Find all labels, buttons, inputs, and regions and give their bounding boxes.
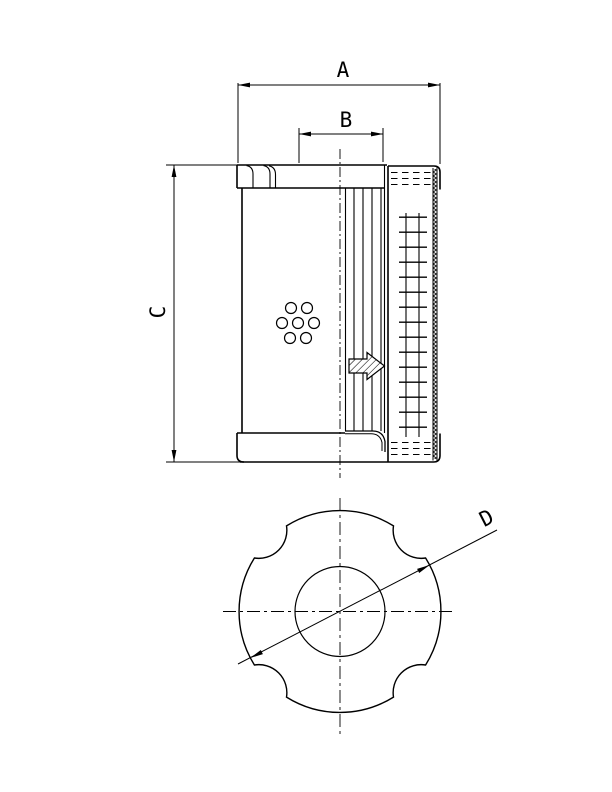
bottom-cap-left-edge [237,433,244,462]
dim-c-arrow-bottom [172,450,177,462]
dimension-c: C [146,165,240,462]
bottom-view: D [223,498,498,737]
bottom-end-cap [237,431,388,462]
drawing-page: A B C [0,0,612,792]
dim-c-arrow-top [172,165,177,177]
crosshair-centerlines [223,498,452,737]
wrap-top-edge-and-lip [388,166,440,190]
dim-a-arrow-right [428,83,440,88]
dim-c-label: C [146,306,170,319]
dimension-b: B [299,108,383,163]
element-body [237,149,388,478]
technical-drawing-canvas: A B C [0,0,612,792]
filter-pleats [346,188,382,431]
cap-rolled-seam-lines [247,166,276,188]
perforation-holes [277,303,320,344]
adhesive-band-bottom [391,443,432,455]
side-section-view: A B C [146,58,440,478]
outer-mesh-wrap [388,166,440,462]
dim-d-arrow-lower [250,650,263,658]
dim-a-label: A [337,58,350,82]
dim-d-arrow-upper [417,565,430,573]
dim-d-line [238,530,497,664]
dimension-d: D [238,505,498,664]
dim-a-arrow-left [238,83,250,88]
adhesive-band-top [391,173,432,185]
mesh-grid [406,213,419,437]
top-end-cap [237,165,387,188]
dim-b-arrow-right [371,132,383,137]
dim-d-label: D [475,505,497,532]
wrap-bottom-lip-and-edge [388,434,440,463]
crimped-seam-strip [433,169,437,459]
bottom-cap-step-inner [345,434,382,451]
dim-b-arrow-left [299,132,311,137]
dim-b-label: B [340,108,353,132]
